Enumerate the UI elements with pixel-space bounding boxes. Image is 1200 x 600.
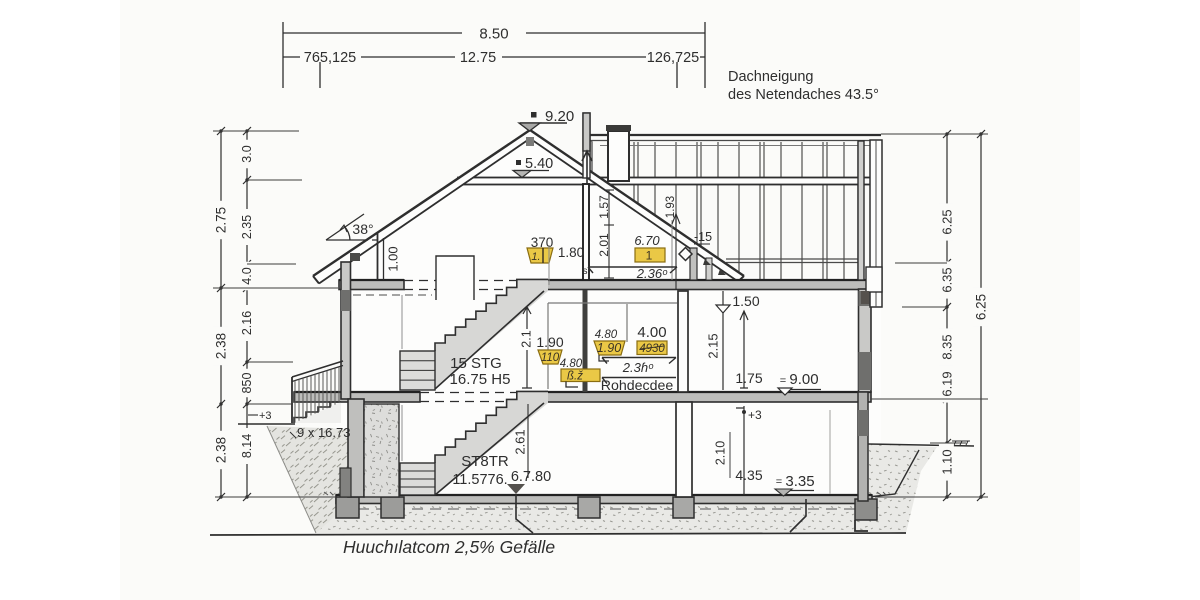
- svg-text:1.: 1.: [531, 251, 540, 263]
- svg-text:4.00: 4.00: [637, 324, 666, 341]
- svg-text:Huuchılatcom 2,5% Gefälle: Huuchılatcom 2,5% Gefälle: [343, 537, 555, 557]
- svg-text:des Netendaches 43.5°: des Netendaches 43.5°: [728, 87, 879, 103]
- svg-text:6.70: 6.70: [634, 233, 660, 248]
- svg-text:1.00: 1.00: [385, 246, 400, 271]
- svg-text:126,725: 126,725: [647, 50, 699, 66]
- svg-text:1.75: 1.75: [735, 370, 762, 386]
- svg-text:850: 850: [240, 373, 254, 394]
- svg-text:2.38: 2.38: [214, 333, 229, 359]
- svg-text:2.61: 2.61: [512, 429, 527, 454]
- svg-text:2.3ɦᵒ: 2.3ɦᵒ: [622, 360, 654, 375]
- svg-text:1.50: 1.50: [732, 293, 759, 309]
- svg-text:4.80: 4.80: [560, 358, 583, 370]
- svg-text:5.40: 5.40: [525, 156, 553, 172]
- svg-text:6.25: 6.25: [974, 294, 989, 320]
- svg-text:110: 110: [541, 352, 560, 364]
- svg-text:2.1: 2.1: [519, 330, 533, 347]
- svg-text:9.00: 9.00: [789, 371, 818, 388]
- svg-text:2.01: 2.01: [597, 233, 611, 257]
- svg-text:16.75 H5: 16.75 H5: [450, 371, 511, 388]
- svg-text:4.0: 4.0: [240, 267, 254, 284]
- svg-text:4.35: 4.35: [735, 467, 762, 483]
- svg-text:12.75: 12.75: [460, 50, 496, 66]
- svg-text:1.80: 1.80: [558, 245, 584, 260]
- svg-text:3.0: 3.0: [240, 145, 254, 162]
- svg-text:2.35: 2.35: [240, 215, 254, 239]
- svg-text:2.75: 2.75: [214, 207, 229, 233]
- svg-text:1.90: 1.90: [597, 341, 621, 355]
- svg-text:ST8TR: ST8TR: [461, 453, 509, 470]
- svg-text:15 STG: 15 STG: [450, 355, 502, 372]
- svg-text:+3: +3: [259, 410, 272, 422]
- svg-text:Rohdecdee: Rohdecdee: [601, 378, 674, 394]
- svg-text:1.57: 1.57: [597, 195, 611, 219]
- svg-text:+3: +3: [748, 408, 762, 422]
- svg-text:8.35: 8.35: [940, 334, 955, 359]
- svg-text:ß.ž: ß.ž: [567, 371, 583, 383]
- svg-text:=: =: [776, 476, 782, 488]
- svg-text:s: s: [583, 266, 588, 277]
- svg-text:765,125: 765,125: [304, 50, 356, 66]
- svg-text:1.10: 1.10: [940, 449, 955, 474]
- svg-text:38°: 38°: [352, 221, 373, 237]
- svg-text:9 x 16.73: 9 x 16.73: [297, 425, 351, 440]
- svg-text:8.50: 8.50: [479, 26, 508, 43]
- svg-text:2.36ᵒ: 2.36ᵒ: [636, 266, 668, 281]
- svg-text:2.16: 2.16: [240, 311, 254, 335]
- svg-text:11.5776.: 11.5776.: [452, 472, 507, 488]
- svg-text:6.25: 6.25: [940, 209, 955, 234]
- svg-text:1.93: 1.93: [665, 196, 677, 218]
- svg-text:3.35: 3.35: [785, 473, 814, 490]
- svg-text:6.7.80: 6.7.80: [511, 469, 551, 485]
- svg-text:1.90: 1.90: [536, 334, 563, 350]
- svg-text:4.80: 4.80: [595, 329, 618, 341]
- svg-text:2.15: 2.15: [705, 333, 720, 358]
- svg-text:-15: -15: [694, 230, 712, 244]
- svg-text:6.19: 6.19: [940, 371, 955, 396]
- svg-text:8.14: 8.14: [240, 434, 254, 458]
- svg-text:=: =: [780, 375, 786, 387]
- svg-text:6.35: 6.35: [940, 267, 955, 292]
- svg-text:Dachneigung: Dachneigung: [728, 69, 813, 85]
- svg-text:2.38: 2.38: [214, 437, 229, 463]
- svg-text:2.10: 2.10: [713, 441, 727, 465]
- svg-text:1: 1: [646, 249, 653, 263]
